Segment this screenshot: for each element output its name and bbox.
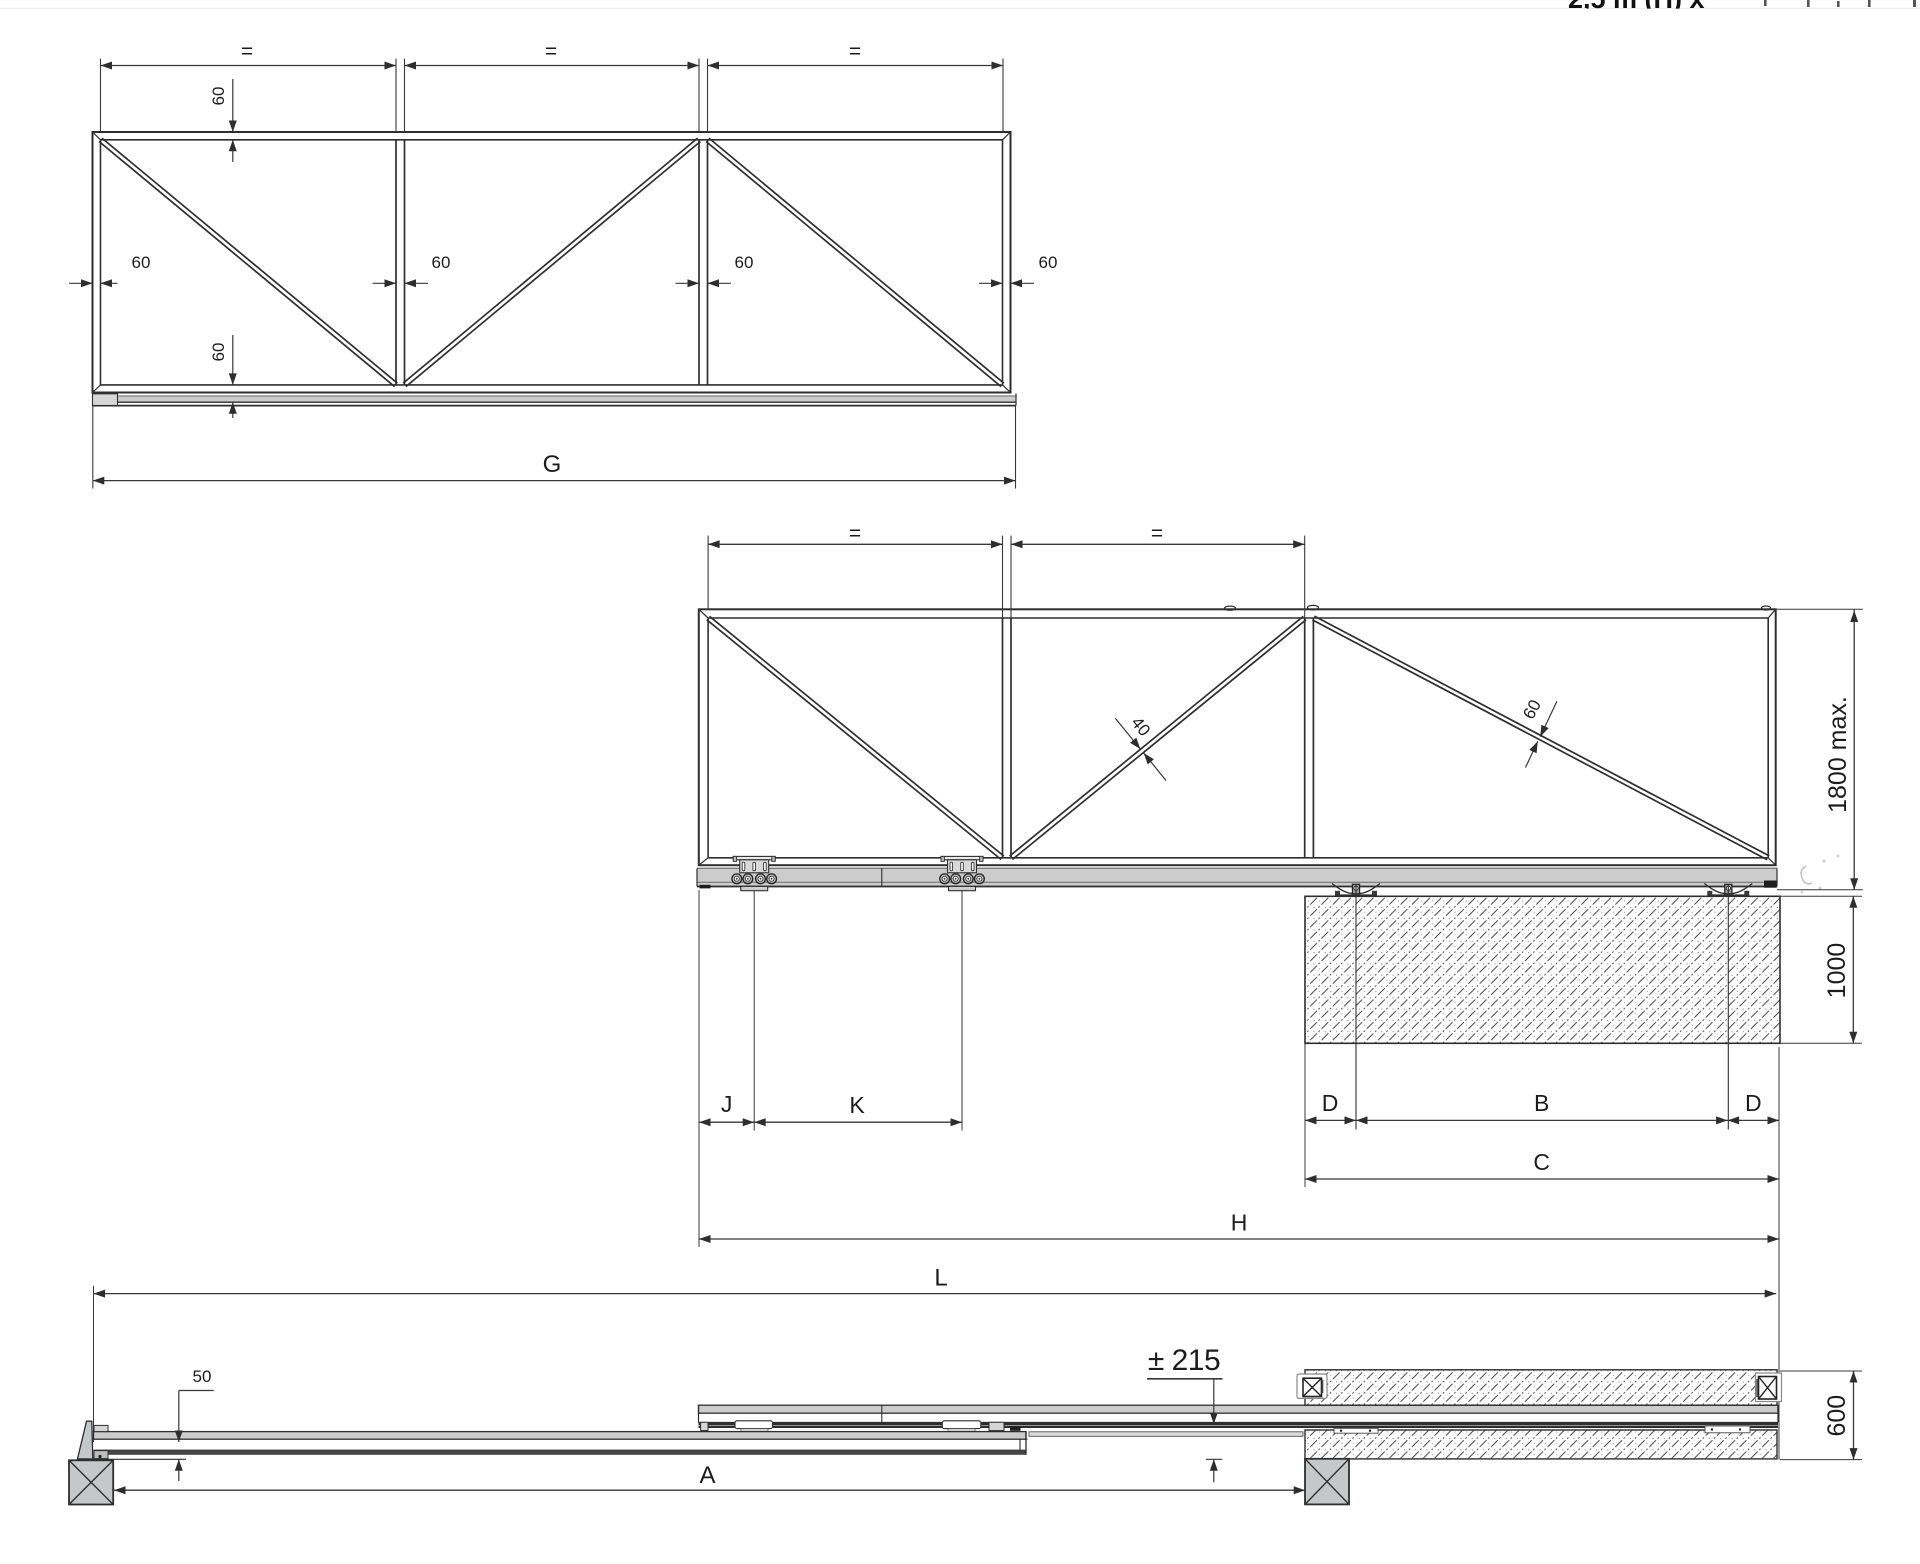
svg-text:G: G bbox=[543, 451, 562, 478]
svg-text:A: A bbox=[699, 1462, 715, 1489]
svg-text:D: D bbox=[1745, 1090, 1762, 1116]
svg-text:D: D bbox=[1322, 1090, 1339, 1116]
svg-text:60: 60 bbox=[132, 253, 151, 272]
svg-text:B: B bbox=[1534, 1090, 1549, 1116]
svg-text:60: 60 bbox=[1519, 697, 1545, 723]
svg-text:2,5 m (H) x: 2,5 m (H) x bbox=[1568, 0, 1705, 14]
svg-text:600: 600 bbox=[1823, 1395, 1851, 1437]
svg-text:H: H bbox=[1231, 1210, 1248, 1236]
svg-text:60: 60 bbox=[1039, 253, 1058, 272]
svg-text:=: = bbox=[1151, 522, 1163, 545]
svg-text:J: J bbox=[721, 1091, 733, 1117]
svg-text:=: = bbox=[849, 40, 861, 63]
svg-text:60: 60 bbox=[735, 253, 754, 272]
svg-text:50: 50 bbox=[193, 1367, 212, 1386]
svg-text:L: L bbox=[934, 1265, 947, 1292]
svg-text:40: 40 bbox=[1127, 713, 1154, 740]
svg-text:=: = bbox=[545, 40, 557, 63]
svg-text:60: 60 bbox=[209, 343, 228, 362]
svg-text:=: = bbox=[849, 522, 861, 545]
svg-text:K: K bbox=[849, 1092, 865, 1118]
svg-text:C: C bbox=[1533, 1149, 1550, 1175]
svg-text:± 215: ± 215 bbox=[1148, 1344, 1220, 1377]
svg-text:1800 max.: 1800 max. bbox=[1824, 696, 1852, 813]
svg-text:1000: 1000 bbox=[1823, 943, 1851, 999]
svg-text:60: 60 bbox=[432, 253, 451, 272]
svg-text:60: 60 bbox=[209, 87, 228, 106]
svg-text:=: = bbox=[241, 40, 253, 63]
